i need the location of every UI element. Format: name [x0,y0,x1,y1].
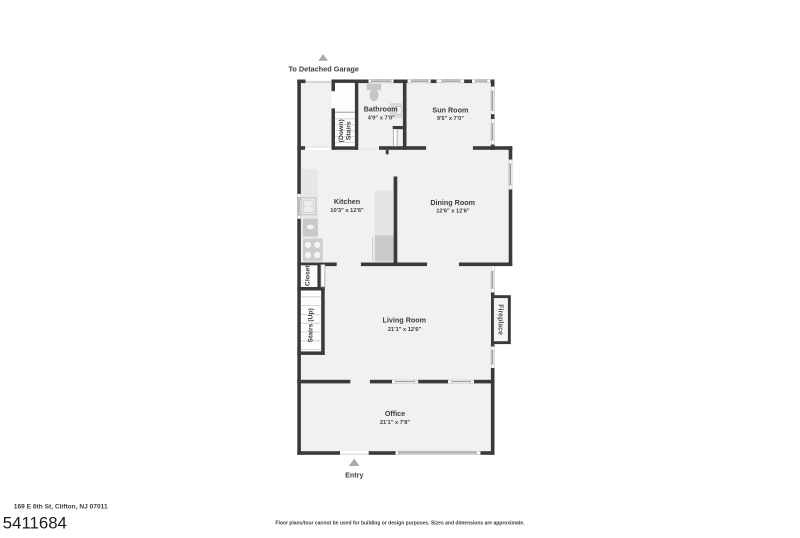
svg-text:4'9" x 7'0": 4'9" x 7'0" [368,116,395,122]
svg-text:12'6" x 12'6": 12'6" x 12'6" [436,208,470,214]
svg-text:Stairs: Stairs [345,121,352,140]
svg-text:169 E 6th St, Clifton, NJ 0701: 169 E 6th St, Clifton, NJ 07011 [14,504,108,511]
svg-text:21'1" x 12'6": 21'1" x 12'6" [388,327,422,333]
svg-text:Office: Office [385,409,405,418]
svg-text:To Detached Garage: To Detached Garage [289,65,359,74]
svg-text:Floor plans/tour cannot be use: Floor plans/tour cannot be used for buil… [275,520,525,526]
svg-text:Stairs (Up): Stairs (Up) [308,308,315,342]
svg-text:Living Room: Living Room [383,316,427,325]
svg-text:10'3" x 12'6": 10'3" x 12'6" [330,208,364,214]
svg-text:Dining Room: Dining Room [430,198,475,207]
svg-text:21'1" x 7'8": 21'1" x 7'8" [380,420,411,426]
svg-text:Entry: Entry [345,470,363,479]
svg-text:(Down): (Down) [338,119,345,142]
svg-text:Fireplace: Fireplace [497,304,504,335]
svg-text:Closet: Closet [305,265,312,287]
svg-text:Bathroom: Bathroom [364,105,398,114]
svg-text:Sun Room: Sun Room [432,105,468,114]
svg-text:5411684: 5411684 [3,514,67,533]
svg-text:9'5" x 7'0": 9'5" x 7'0" [437,116,464,122]
svg-text:Kitchen: Kitchen [334,197,360,206]
